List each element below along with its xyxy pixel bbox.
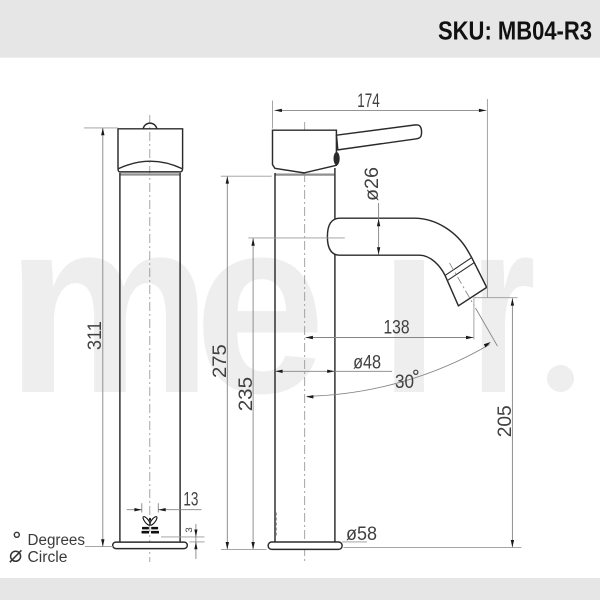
svg-text:ø58: ø58 — [346, 524, 377, 545]
svg-text:Circle: Circle — [28, 549, 68, 566]
svg-text:SKU: MB04-R3: SKU: MB04-R3 — [438, 18, 592, 46]
svg-text:Degrees: Degrees — [28, 532, 86, 549]
svg-text:ø26: ø26 — [362, 167, 383, 201]
svg-text:ı: ı — [379, 166, 439, 445]
svg-text:235: 235 — [235, 377, 257, 412]
svg-text:e: e — [194, 166, 326, 445]
svg-text:ø48: ø48 — [353, 353, 381, 374]
svg-text:275: 275 — [209, 344, 231, 378]
svg-text:138: 138 — [384, 317, 410, 338]
svg-text:174: 174 — [357, 91, 380, 112]
svg-text:30: 30 — [395, 371, 414, 393]
svg-text:3: 3 — [184, 527, 195, 532]
svg-text:311: 311 — [84, 321, 106, 350]
svg-text:r: r — [470, 167, 536, 446]
svg-text:205: 205 — [494, 405, 516, 437]
svg-text:m: m — [6, 167, 212, 446]
svg-text:13: 13 — [183, 490, 198, 511]
